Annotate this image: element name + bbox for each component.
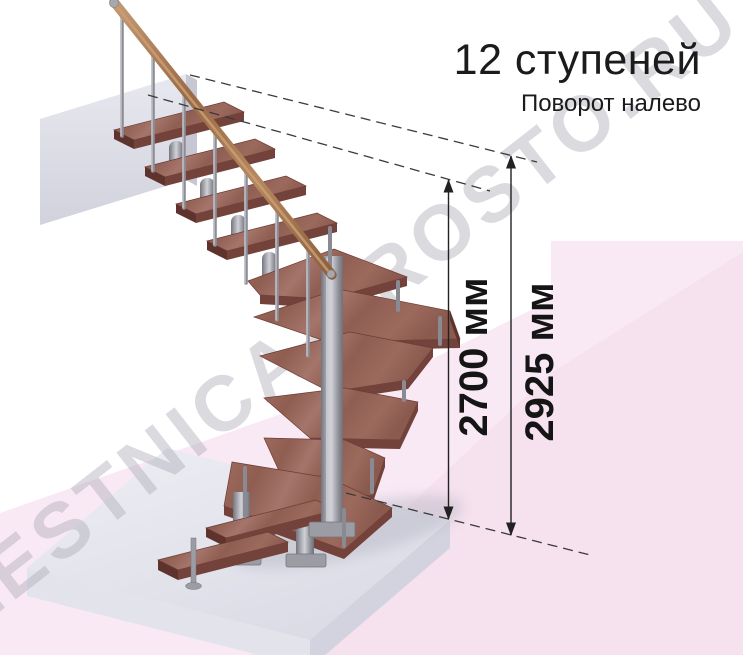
steps-count-heading: 12 ступеней (454, 38, 701, 83)
handrail-end-cap (110, 0, 119, 8)
pole-shaft (321, 256, 343, 528)
pole-highlight (326, 258, 331, 526)
turn-direction-subheading: Поворот налево (454, 92, 701, 116)
pole-base-plate (309, 522, 355, 537)
title-block: 12 ступеней Поворот налево (454, 38, 701, 116)
post-base (186, 583, 202, 590)
dimension-label-2925: 2925 мм (518, 282, 562, 441)
dimension-label-2700: 2700 мм (452, 277, 496, 436)
staircase-illustration: LESTNICA-PROSTO.RU (0, 0, 743, 655)
support-post (191, 538, 196, 585)
handrail-end-cap (327, 270, 335, 278)
column-base-plate (286, 554, 326, 567)
